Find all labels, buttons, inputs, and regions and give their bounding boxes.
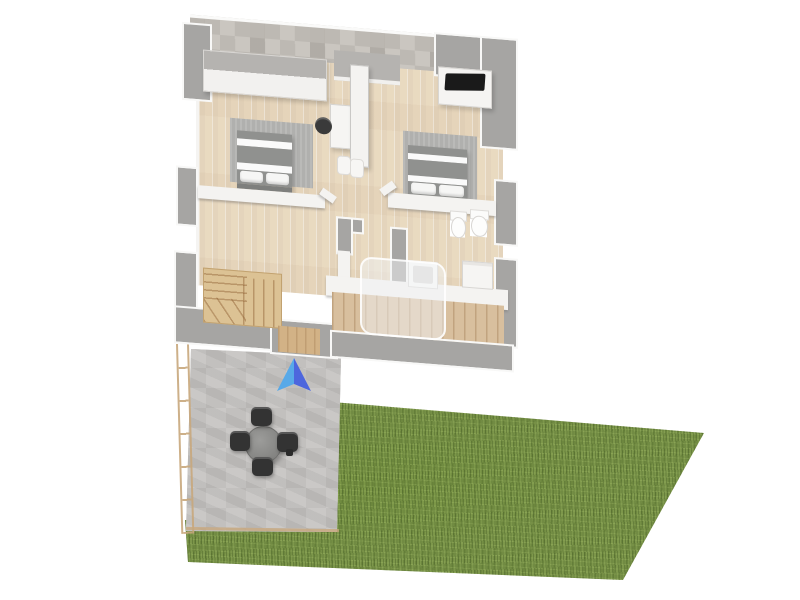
bathroom-wall-west-lower [338, 250, 350, 279]
tall-wardrobe [350, 64, 369, 168]
house-footprint [184, 10, 516, 389]
desk [330, 104, 351, 150]
bidet [450, 210, 465, 237]
tv-sideboard [438, 66, 492, 108]
pillow [439, 185, 464, 197]
tv [444, 73, 485, 90]
staircase [203, 268, 282, 329]
patio-door-threshold [278, 326, 320, 355]
stair-treads-lower [243, 278, 281, 328]
toilet [470, 209, 487, 237]
garden-chair-west [230, 431, 250, 451]
garden-chair-south [252, 457, 273, 476]
pillow [240, 171, 263, 184]
floorplan-render [0, 0, 800, 600]
bidet-bowl [451, 216, 466, 238]
pouf [337, 155, 351, 175]
pillow [411, 183, 436, 195]
bath-cabinet [462, 260, 493, 289]
wall-west-segment [178, 168, 196, 225]
table-accessory [286, 449, 293, 456]
shower-glass-enclosure [360, 256, 446, 341]
garden-chair-north [251, 407, 272, 426]
wall-east-segment [496, 181, 516, 245]
pillow [266, 173, 289, 186]
desk-chair [315, 117, 332, 135]
bedroom-left-bed [237, 130, 292, 192]
toilet-bowl [471, 215, 487, 238]
bathroom-wall-west [338, 218, 351, 253]
pouf [350, 158, 364, 178]
stair-winder [204, 297, 246, 325]
